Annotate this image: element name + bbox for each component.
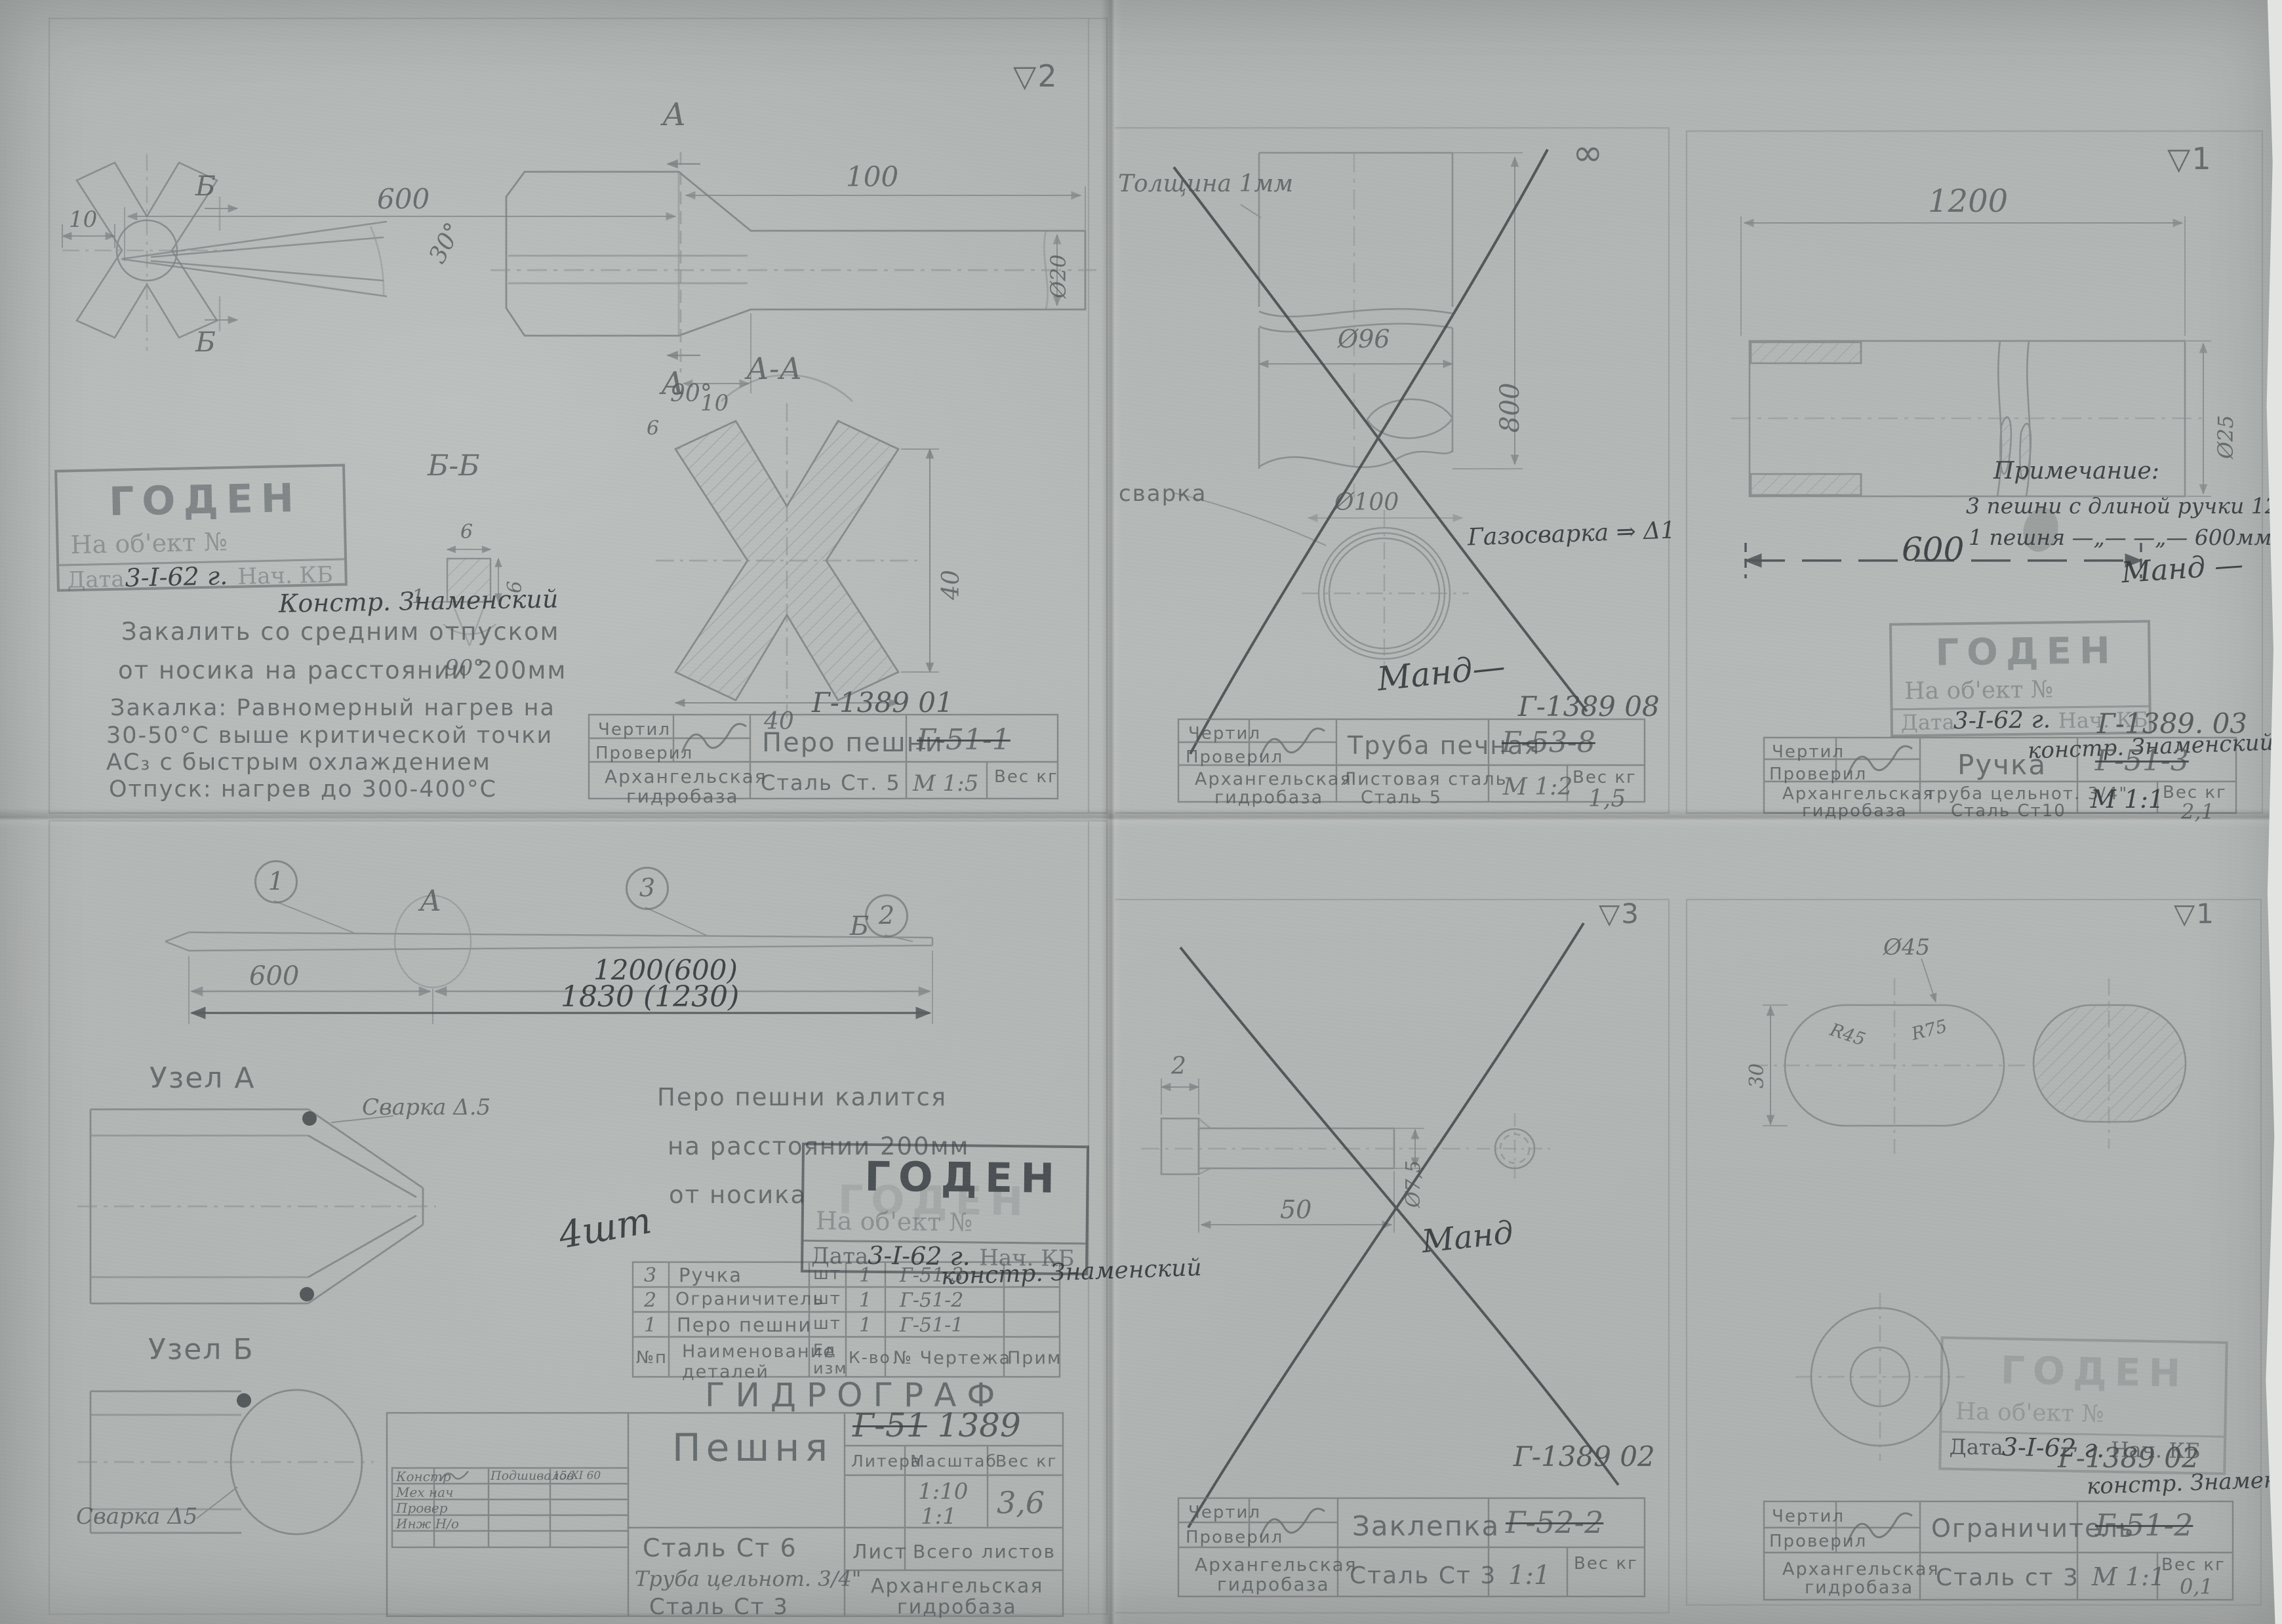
br-tb-proveril: Проверил [1769,1533,1867,1551]
bl-part-name: Пешня [672,1428,833,1468]
bl-parts-row-dwg: Г-51-2 [900,1290,963,1311]
tm-dim-800: 800 [1496,383,1524,433]
tl-section-mark-a-top: А [662,98,686,131]
tr-old-code: Г-51-3 [2095,746,2189,776]
tm-dia-100: Ø100 [1334,490,1399,515]
tl-label-aa: А-А [746,353,802,384]
tr-tb-proveril: Проверил [1769,766,1867,783]
br-old-code: Г-51-2 [2095,1509,2193,1541]
bl-parts-row-dwg: Г-51-3 [900,1265,963,1286]
br-tb-chertil: Чертил [1772,1508,1845,1526]
bl-parts-row-qty: 1 [859,1315,871,1336]
tl-scale: М 1:5 [913,772,978,796]
br-org-line1: Архангельская [1782,1560,1940,1579]
bl-parts-row-qty: 1 [859,1290,871,1311]
tr-dim-1200: 1200 [1928,185,2008,218]
tm-tb-proveril: Проверил [1186,749,1283,766]
tm-dia-96: Ø96 [1338,327,1390,353]
tm-end-circle [1174,493,1469,677]
tl-stamp-date-label: Дата [67,568,125,593]
bl-dim-600: 600 [249,962,299,990]
bl-tb-material2: Труба цельнот. 3/4" [635,1568,861,1591]
tl-stamp-date-value: 3-I-62 г. [125,563,228,591]
tl-note-line: Закалить со средним отпуском [121,620,560,645]
bl-parts-row-unit: шт [813,1290,841,1308]
tr-note-title: Примечание: [1993,459,2159,484]
bl-sig-row-label: Провер [396,1501,448,1515]
bl-balloon-3: 3 [626,867,669,910]
br-ves-kg: Вес кг [2161,1556,2226,1574]
tm-tb-chertil: Чертил [1188,725,1261,743]
tl-aa-dim-6: 6 [647,418,659,439]
bl-parts-row-num: 3 [644,1265,656,1286]
br-material: Сталь ст 3 [1936,1566,2079,1591]
bl-parts-header-note: Прим [1007,1349,1062,1368]
tr-tb-chertil: Чертил [1772,743,1845,761]
tm-material-line2: Сталь 5 [1361,789,1442,807]
tl-note-line: Отпуск: нагрев до 300-400°С [109,778,497,802]
bl-uzel-b-label: Узел Б [148,1335,254,1365]
bl-parts-row-num: 2 [644,1290,656,1311]
bl-note-line: от носика [669,1183,807,1208]
bl-sig-date: 15/XI 60 [553,1471,601,1482]
tl-note-line: от носика на расстоянии 200мм [118,658,567,684]
br-doc-number: Г-1389 02 [2058,1444,2199,1473]
tl-section-aa [656,375,939,718]
bl-parts-row-unit: шт [813,1265,841,1283]
br-stamp-date-label: Дата [1950,1436,2003,1459]
bl-sig-row-label: Констр [396,1470,451,1484]
tm-surface-mark: ∞ [1572,134,1605,173]
bl-sig-row-label: Мех нач [396,1486,454,1499]
bl-tb-scale2: 1:1 [921,1505,957,1529]
bl-balloon-1-number: 1 [268,867,284,896]
bl-node-a-label: А [420,886,441,917]
tl-old-code: Г-51-1 [917,725,1011,755]
tl-note-line: 30-50°С выше критической точки [106,724,553,748]
tl-note-line: Закалка: Равномерный нагрев на [110,696,555,721]
br-dim-30: 30 [1747,1063,1768,1088]
tl-dim-10-tip: 10 [69,208,97,232]
bl-parts-row-qty: 1 [859,1265,871,1286]
tm-scale: М 1:2 [1503,775,1572,800]
bl-tb-sheets: Всего листов [913,1542,1056,1561]
bl-uzel-a-label: Узел А [150,1063,256,1094]
tr-finish-mark: ▽1 [2167,143,2212,174]
fold-crease-horizontal [0,808,2282,828]
tl-dim-600: 600 [377,185,430,214]
tm-org-line2: гидробаза [1214,789,1323,807]
tr-stamp-date-label: Дата [1901,711,1955,734]
bm-tb-chertil: Чертил [1188,1504,1261,1522]
bl-parts-header-dwg: № Чертежа [893,1349,1011,1368]
br-scale: М 1:1 [2092,1564,2165,1591]
bm-tb-proveril: Проверил [1186,1529,1283,1547]
bl-balloon-2: 2 [865,894,908,938]
tr-stamp-goden-text: ГОДЕН [1935,632,2118,673]
tl-bb-dim-6-top: 6 [460,522,473,543]
tr-note-line2: 1 пешня —„— —„— 600мм. [1969,526,2279,549]
bm-signature: Манд [1420,1216,1515,1259]
tm-svarka-note: сварка [1119,483,1207,506]
bl-stamp-object-text: На об'ект № [816,1208,973,1236]
tl-dia-20: Ø20 [1048,254,1070,298]
bm-ves-kg: Вес кг [1574,1555,1638,1573]
bl-tb-list: Лист [852,1542,908,1563]
tl-aa-angle-90: 90° [670,382,712,406]
tl-tb-chertil: Чертил [598,721,671,739]
bl-balloon-1: 1 [254,860,298,903]
bl-tb-org1: Архангельская [871,1576,1043,1597]
tr-note-line1: 3 пешни с длиной ручки 1200мм [1966,495,2282,518]
bl-tb-scale1: 1:10 [918,1480,968,1504]
bl-parts-row-num: 1 [644,1315,656,1336]
bm-dia-75: Ø7,5 [1403,1160,1424,1208]
bl-dim-1830: 1830 (1230) [561,982,739,1012]
tl-konstr-note: Констр. Знаменский [279,586,559,617]
bm-part-name: Заклепка [1352,1512,1500,1541]
tl-dim-100: 100 [846,163,898,191]
tl-doc-number: Г-1389 01 [812,688,953,717]
bl-doc-number-new: 1389 [938,1406,1021,1444]
bl-balloon-3-number: 3 [639,873,655,902]
br-stamp-goden-text: ГОДЕН [2000,1351,2188,1394]
tl-aa-dim-40-right: 40 [939,570,964,600]
bl-goden-stamp: ГОДЕН ГОДЕН На об'ект № Дата 3-I-62 г. Н… [801,1143,1089,1276]
bl-parts-row-name: Перо пешни [677,1315,812,1335]
bl-parts-header-unit: Ед изм [813,1341,846,1377]
bl-parts-header-num: №п [636,1349,668,1367]
bl-tb-org2: гидробаза [897,1597,1017,1618]
bl-tb-material1: Сталь Ст 6 [643,1535,797,1562]
tr-dia-25: Ø25 [2215,415,2237,459]
bm-org-line1: Архангельская [1195,1555,1357,1574]
bl-stamp-goden-text: ГОДЕН [864,1155,1062,1200]
bl-sig-row-label: Инж Н/о [396,1517,459,1531]
br-weight-value: 0,1 [2180,1576,2213,1598]
br-org-line2: гидробаза [1805,1579,1913,1597]
bl-doc-number-old: Г-51 [852,1406,927,1444]
bm-material: Сталь Ст 3 [1350,1564,1496,1589]
bl-tb-masshtab: Масштаб [910,1453,997,1470]
tl-goden-stamp: ГОДЕН На об'ект № Дата 3-I-62 г. Нач. КБ [54,464,348,591]
tm-org-line1: Архангельская [1195,770,1352,789]
bl-note-line: Перо пешни калится [657,1085,947,1111]
tl-ves-kg: Вес кг [994,768,1058,786]
tr-stamp-object-text: На об'ект № [1904,677,2053,704]
bm-org-line2: гидробаза [1217,1575,1330,1594]
bl-assembly-view [165,896,932,1024]
bl-doc-number: Г-51 1389 [852,1408,1021,1443]
tl-section-mark-b-top: Б [195,172,216,201]
tl-section-mark-b-bottom: Б [195,328,216,357]
tl-material: Сталь Ст. 5 [761,772,901,795]
bl-svarka-b-note: Сварка Δ5 [76,1505,197,1529]
bl-parts-row-name: Ручка [679,1265,742,1285]
tl-finish-mark: ▽2 [1013,60,1058,92]
tl-label-bb: Б-Б [428,451,480,481]
tm-material-line1: Листовая сталь [1343,770,1508,789]
br-finish-mark: ▽1 [2174,900,2215,928]
bl-node-b-label: Б [850,913,869,940]
tl-stamp-object-text: На об'ект № [70,529,228,559]
tr-doc-number: Г-1389. 03 [2097,709,2247,738]
tl-org-line1: Архангельская [605,767,767,786]
tl-org-line2: гидробаза [626,787,739,806]
tl-stamp-nach-kb: Нач. КБ [237,564,333,589]
tr-stamp-date-value: 3-I-62 г. [1953,707,2051,734]
tl-stamp-goden-text: ГОДЕН [109,478,302,523]
bm-rivet-view [1141,1079,1553,1233]
bl-parts-row-unit: шт [813,1315,841,1333]
bl-parts-header-qty: К-во [849,1349,891,1366]
bm-old-code: Г-52-2 [1506,1507,1603,1538]
bm-finish-mark: ▽3 [1599,900,1640,928]
bm-doc-number: Г-1389 02 [1513,1442,1655,1471]
br-stamp-object-text: На об'ект № [1955,1400,2104,1427]
tm-old-code: Г-53-8 [1502,728,1595,758]
bl-parts-row-name: Ограничитель [675,1290,824,1309]
bl-uzel-a-view [77,1109,436,1303]
bm-dim-2: 2 [1171,1054,1186,1079]
tl-note-line: АС₃ с быстрым охлаждением [106,751,491,775]
bl-tb-weight: 3,6 [997,1487,1045,1518]
bl-svarka-a-note: Сварка Δ.5 [362,1096,490,1120]
tm-doc-number: Г-1389 08 [1518,692,1660,721]
tl-tb-proveril: Проверил [595,745,693,762]
bl-tb-material3: Сталь Ст 3 [649,1596,789,1619]
bl-tb-ves: Вес кг [995,1453,1057,1470]
bl-balloon-2-number: 2 [879,901,894,930]
tr-part-name: Ручка [1957,751,2047,780]
tl-main-view [490,152,1096,372]
bl-parts-row-dwg: Г-51-1 [900,1315,963,1336]
tm-thickness-note: Толщина 1мм [1118,172,1293,197]
tm-ves-kg: Вес кг [1572,769,1637,787]
bm-scale: 1:1 [1508,1562,1550,1589]
bm-dim-50: 50 [1280,1197,1311,1223]
tr-dim-600: 600 [1902,532,1964,567]
tl-dimensions [125,186,1085,393]
br-dia-45: Ø45 [1883,936,1930,960]
